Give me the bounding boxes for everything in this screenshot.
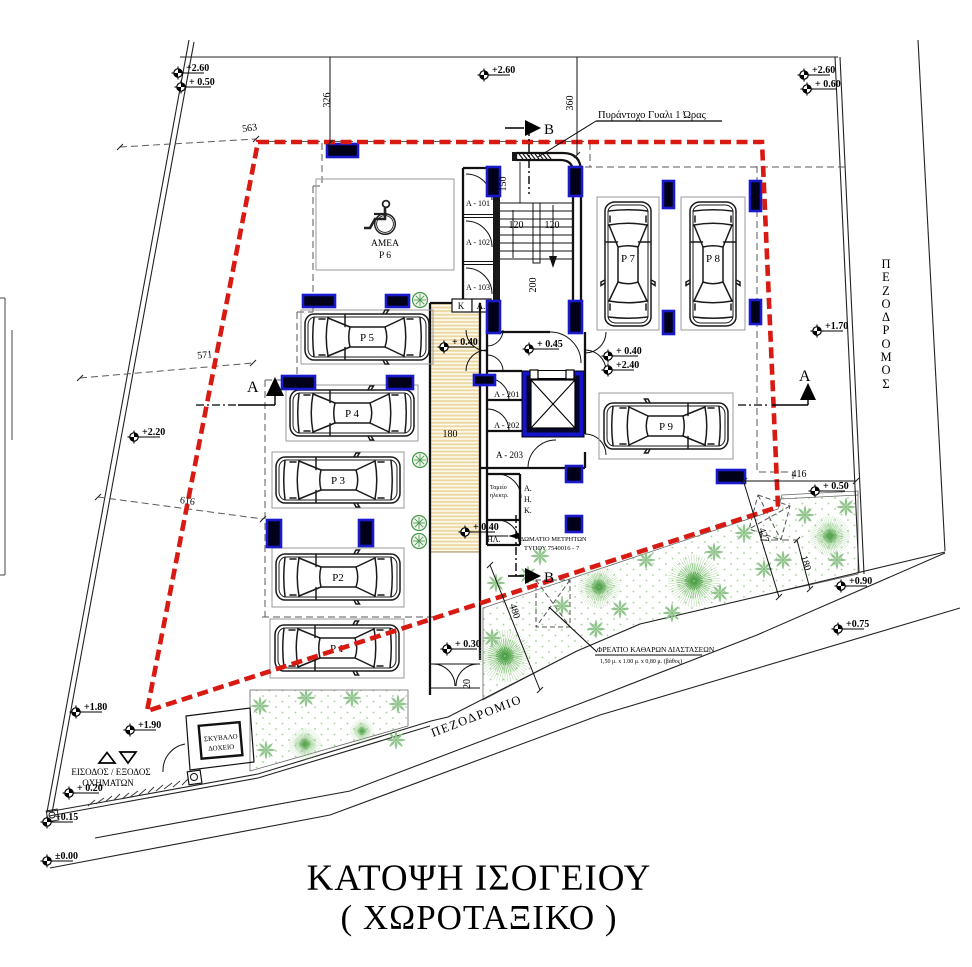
svg-text:Ταμείο: Ταμείο (490, 485, 507, 491)
svg-text:Ο: Ο (881, 363, 890, 377)
svg-text:616: 616 (179, 495, 195, 508)
svg-text:A: A (799, 368, 811, 385)
svg-text:20: 20 (462, 679, 473, 689)
svg-text:ηλεκτρ.: ηλεκτρ. (490, 493, 509, 499)
svg-text:A: A (247, 379, 259, 396)
svg-text:+ 0.30: + 0.30 (455, 639, 481, 650)
svg-text:+2.40: +2.40 (616, 360, 639, 371)
svg-text:150: 150 (498, 177, 509, 192)
svg-text:+2.20: +2.20 (142, 427, 165, 438)
svg-text:Η.: Η. (524, 495, 532, 504)
svg-text:P 8: P 8 (706, 253, 720, 265)
svg-text:ΗΛ.: ΗΛ. (487, 535, 501, 544)
svg-text:+2.60: +2.60 (812, 65, 835, 76)
svg-text:ΟΧΗΜΑΤΩΝ: ΟΧΗΜΑΤΩΝ (82, 778, 134, 788)
svg-text:B: B (544, 122, 554, 138)
svg-text:ΦΡΕΑΤΙΟ ΚΑΘΑΡΩΝ ΔΙΑΣΤΑΣΕΩΝ: ΦΡΕΑΤΙΟ ΚΑΘΑΡΩΝ ΔΙΑΣΤΑΣΕΩΝ (597, 645, 715, 654)
svg-text:Α - 101: Α - 101 (466, 199, 490, 208)
svg-text:120: 120 (509, 220, 524, 231)
svg-text:±0.00: ±0.00 (55, 851, 78, 862)
svg-text:Πυράντοχο Γυαλι 1 Ώρας: Πυράντοχο Γυαλι 1 Ώρας (598, 110, 707, 121)
svg-text:Α - 103: Α - 103 (466, 283, 490, 292)
svg-text:+ 0.40: + 0.40 (452, 337, 478, 348)
svg-text:Α - 203: Α - 203 (496, 450, 524, 460)
svg-text:Ε: Ε (882, 270, 890, 284)
svg-text:ΤΥΠΟΥ 7540016 - 7: ΤΥΠΟΥ 7540016 - 7 (524, 545, 580, 552)
svg-text:ΔΩΜΑΤΙΟ ΜΕΤΡΗΤΩΝ: ΔΩΜΑΤΙΟ ΜΕΤΡΗΤΩΝ (520, 536, 587, 543)
svg-text:P 3: P 3 (331, 475, 345, 487)
svg-text:200: 200 (528, 278, 539, 293)
svg-text:180: 180 (443, 429, 458, 440)
svg-text:Α.: Α. (524, 484, 532, 493)
svg-text:Π: Π (881, 257, 890, 271)
svg-text:Σ: Σ (882, 377, 889, 391)
svg-text:+ 0.45: + 0.45 (537, 339, 563, 350)
svg-text:Α - 201: Α - 201 (494, 389, 520, 399)
svg-text:Ρ: Ρ (883, 323, 890, 337)
svg-text:B: B (544, 570, 554, 586)
svg-text:Α - 102: Α - 102 (466, 238, 490, 247)
svg-text:+2.60: +2.60 (492, 65, 515, 76)
svg-text:+0.15: +0.15 (55, 812, 78, 823)
svg-text:P 9: P 9 (659, 421, 673, 433)
svg-text:120: 120 (545, 220, 560, 231)
svg-text:360: 360 (565, 96, 576, 111)
svg-text:+1.90: +1.90 (138, 720, 161, 731)
svg-text:Ο: Ο (881, 337, 890, 351)
svg-text:Ζ: Ζ (882, 284, 890, 298)
svg-text:+0.90: +0.90 (849, 576, 872, 587)
svg-text:ΕΙΣΟΔΟΣ / ΕΞΟΔΟΣ: ΕΙΣΟΔΟΣ / ΕΞΟΔΟΣ (71, 767, 150, 777)
svg-text:Ο: Ο (881, 297, 890, 311)
svg-text:Μ: Μ (880, 350, 891, 364)
svg-text:416: 416 (792, 469, 807, 480)
svg-text:326: 326 (322, 93, 333, 108)
svg-text:P 5: P 5 (360, 332, 374, 344)
svg-text:P 7: P 7 (621, 253, 635, 265)
svg-text:1,50 μ. x 1.00 μ. x 0,80 μ. (β: 1,50 μ. x 1.00 μ. x 0,80 μ. (βάθος) (600, 658, 682, 665)
svg-text:+ 0.50: + 0.50 (189, 77, 215, 88)
svg-text:Α - 202: Α - 202 (494, 420, 520, 430)
svg-text:+2.60: +2.60 (186, 63, 209, 74)
svg-text:+0.75: +0.75 (846, 619, 869, 630)
svg-text:+1.80: +1.80 (84, 702, 107, 713)
svg-text:P 4: P 4 (345, 408, 359, 420)
svg-text:571: 571 (197, 349, 213, 361)
svg-text:Κ: Κ (458, 301, 465, 311)
svg-text:+ 0.50: + 0.50 (823, 481, 849, 492)
svg-text:+ 0.40: + 0.40 (616, 346, 642, 357)
svg-text:Δ: Δ (882, 310, 890, 324)
svg-text:ΑΜΕΑ: ΑΜΕΑ (371, 239, 399, 249)
svg-text:563: 563 (241, 122, 257, 135)
svg-text:Κ.: Κ. (524, 506, 532, 515)
svg-text:ΚΑΤΟΨΗ ΙΣΟΓΕΙΟΥ: ΚΑΤΟΨΗ ΙΣΟΓΕΙΟΥ (307, 858, 652, 899)
svg-text:( ΧΩΡΟΤΑΞΙΚΟ ): ( ΧΩΡΟΤΑΞΙΚΟ ) (341, 898, 618, 937)
svg-text:P2: P2 (332, 572, 344, 584)
svg-text:+ 0.60: + 0.60 (815, 79, 841, 90)
svg-text:+1.70: +1.70 (825, 321, 848, 332)
svg-text:P 6: P 6 (379, 251, 391, 261)
svg-text:+ 0.40: + 0.40 (473, 522, 499, 533)
